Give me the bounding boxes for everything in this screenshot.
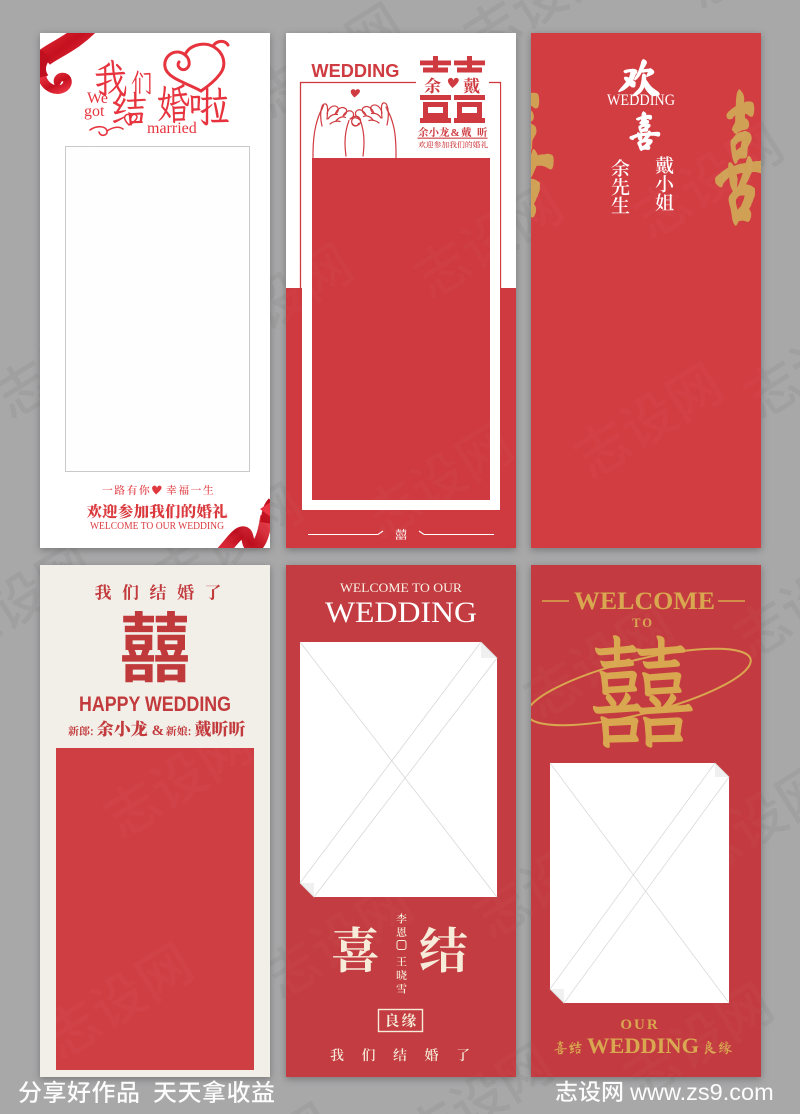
svg-text:www.zs9.com: www.zs9.com: [629, 1079, 774, 1105]
